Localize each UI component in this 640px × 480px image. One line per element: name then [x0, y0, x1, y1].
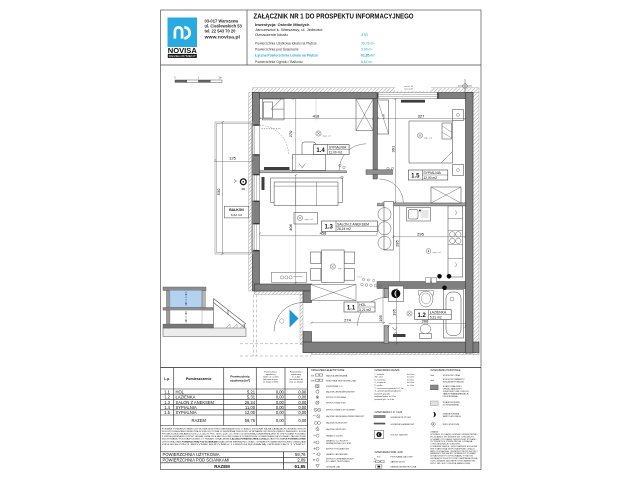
svg-text:0,00: 0,00: [276, 410, 285, 415]
svg-text:Npd: Npd: [430, 380, 433, 382]
svg-text:OZNACZENIA C.O. I GAZ: OZNACZENIA C.O. I GAZ: [375, 411, 403, 414]
svg-text:ZAŁĄCZNIK NR 1 DO PROSPEKTU IN: ZAŁĄCZNIK NR 1 DO PROSPEKTU INFORMACYJNE…: [254, 11, 414, 20]
svg-text:ŁĄCZNIK SCHODOWY: ŁĄCZNIK SCHODOWY: [326, 422, 348, 425]
svg-text:WENTYLACJI MECH.: WENTYLACJI MECH.: [443, 415, 462, 418]
svg-text:0,00: 0,00: [298, 410, 307, 415]
svg-text:KRATKA GEOMETRYCZNA: KRATKA GEOMETRYCZNA: [391, 466, 417, 469]
svg-text:5,31 m2: 5,31 m2: [430, 316, 442, 320]
svg-text:LW: LW: [382, 114, 386, 118]
svg-text:PODANE POWIERZCHNIE UŻYTKOWE B: PODANE POWIERZCHNIE UŻYTKOWE BUDYNKU MIE…: [162, 427, 307, 430]
svg-text:59,76: 59,76: [295, 452, 306, 457]
svg-text:61,85: 61,85: [295, 464, 307, 469]
svg-text:Łączna Powierzchnia Lokalu na: Łączna Powierzchnia Lokalu na Piętrze: [255, 54, 318, 58]
svg-text:budówka kotłów: h= 0,5m: budówka kotłów: h= 0,5m: [375, 395, 397, 398]
svg-text:SYPIALNIA: SYPIALNIA: [329, 146, 347, 150]
svg-text:125: 125: [229, 156, 236, 161]
svg-text:1.4: 1.4: [316, 148, 325, 154]
svg-text:wyp. suf.: wyp. suf.: [323, 136, 332, 138]
svg-text:1.3: 1.3: [325, 225, 334, 231]
svg-text:Z UWZGLĘDNIENIEM UCZYNIĆ JEDNA: Z UWZGLĘDNIENIEM UCZYNIĆ JEDNAK USTALI D…: [162, 435, 307, 438]
svg-text:RAZEM: RAZEM: [214, 464, 230, 469]
svg-text:195: 195: [391, 308, 396, 315]
svg-text:h= 0,6m: h= 0,6m: [407, 374, 414, 376]
svg-text:1.5: 1.5: [411, 173, 420, 179]
svg-text:GNIAZDO 1x230V: GNIAZDO 1x230V: [326, 435, 343, 438]
svg-text:PROJEKTU BUDOWLANEGO (DZ.U. Z: PROJEKTU BUDOWLANEGO (DZ.U. Z 2022 R. PO…: [162, 433, 307, 436]
svg-text:0,00: 0,00: [276, 418, 285, 423]
svg-text:295: 295: [417, 232, 424, 237]
svg-text:uż. lokalu w 50%): uż. lokalu w 50%): [263, 381, 278, 383]
svg-text:6,62 m2: 6,62 m2: [231, 213, 242, 217]
svg-text:PG: PG: [377, 456, 380, 458]
svg-text:SYPIALNIA: SYPIALNIA: [423, 171, 441, 175]
svg-text:5,21 m2: 5,21 m2: [359, 308, 371, 312]
svg-text:OZNACZENIA WOD.-KAN.: OZNACZENIA WOD.-KAN.: [375, 451, 404, 454]
svg-text:PION KANALIZACYJNY: PION KANALIZACYJNY: [391, 455, 414, 458]
svg-text:G - gniazdo grzałki grządk: G - gniazdo grzałki grządkowej: [375, 390, 401, 393]
svg-text:użytkowa [m²]: użytkowa [m²]: [230, 378, 250, 382]
svg-text:6,62 m²: 6,62 m²: [361, 60, 373, 64]
svg-text:TABLICA MIESZKANIA: TABLICA MIESZKANIA: [326, 374, 348, 377]
svg-text:OZNACZENIA ELEKTRYCZNE: OZNACZENIA ELEKTRYCZNE: [311, 369, 345, 372]
svg-text:1.1: 1.1: [347, 305, 356, 311]
svg-text:TŻW: TŻW: [311, 380, 315, 383]
svg-text:KOCIOŁ GAZOWY: KOCIOŁ GAZOWY: [391, 434, 409, 437]
svg-text:274: 274: [344, 318, 351, 323]
svg-text:WZGLĘDEM POSADZKI: WZGLĘDEM POSADZKI: [443, 381, 464, 384]
svg-text:ŁĄCZNIK GRUPOWY: ŁĄCZNIK GRUPOWY: [326, 428, 347, 431]
svg-text:(DO WENT. SUFITOWEJ): (DO WENT. SUFITOWEJ): [326, 461, 350, 463]
svg-text:59,76: 59,76: [245, 418, 256, 423]
svg-text:12,00: 12,00: [245, 410, 256, 415]
svg-text:SYPIALNIA: SYPIALNIA: [176, 410, 197, 415]
svg-text:418: 418: [313, 113, 320, 118]
svg-text:ŁĄCZNIK JEDNOBIEGUNOWY: ŁĄCZNIK JEDNOBIEGUNOWY: [326, 391, 356, 394]
svg-text:285: 285: [395, 239, 400, 246]
svg-text:h= 1,0m: h= 1,0m: [407, 385, 414, 387]
svg-text:ZAWÓR WODY: ZAWÓR WODY: [391, 460, 406, 463]
svg-text:SKRZYNKA TELETECHNICZNA: SKRZYNKA TELETECHNICZNA: [326, 380, 356, 383]
svg-text:I UZUPEŁNIENIA: I UZUPEŁNIENIA: [443, 395, 459, 398]
svg-text:Powierzchnia Użytkowa lokalu n: Powierzchnia Użytkowa lokalu na Piętrze: [255, 41, 317, 45]
svg-text:ŁĄCZNIK JEDNOBIEG./ŚWIECZNIKOW: ŁĄCZNIK JEDNOBIEG./ŚWIECZNIKOWY: [326, 415, 365, 418]
svg-text:BALKON: BALKON: [229, 208, 244, 212]
svg-text:WYPUST TRÓJFAZOWY: WYPUST TRÓJFAZOWY: [326, 447, 350, 450]
svg-text:SALON Z ANEKSEM: SALON Z ANEKSEM: [337, 222, 369, 226]
svg-text:OZNACZENIA GNIAZD: OZNACZENIA GNIAZD: [375, 369, 400, 372]
svg-text:GNIAZDO ANTENOWE: GNIAZDO ANTENOWE: [326, 453, 348, 456]
svg-text:0,00: 0,00: [298, 418, 307, 423]
svg-text:Powierzchnia pod Ściankami: Powierzchnia pod Ściankami: [255, 47, 299, 52]
svg-text:W ROZPORZĄDZENIU MINISTRA ROZW: W ROZPORZĄDZENIU MINISTRA ROZWOJU Z DNIA…: [162, 430, 306, 433]
svg-text:tel. 22 543 70 20: tel. 22 543 70 20: [205, 29, 237, 34]
svg-text:2m: 2m: [219, 77, 222, 80]
svg-text:pow. uż. lokalu): pow. uż. lokalu): [290, 381, 303, 383]
svg-text:OZNACZENIA POZOSTAŁE: OZNACZENIA POZOSTAŁE: [430, 369, 461, 372]
svg-text:h= 0,9m: h= 0,9m: [407, 377, 414, 379]
svg-text:37B: 37B: [361, 33, 368, 37]
svg-text:ZW - zlew: ZW - zlew: [375, 377, 384, 379]
svg-text:12,00 m2: 12,00 m2: [423, 176, 437, 180]
svg-text:CELKA RLO/AL: CELKA RLO/AL: [326, 465, 341, 468]
svg-text:GRZEJNIK ŁAZIENKOWY: GRZEJNIK ŁAZIENKOWY: [391, 423, 416, 426]
svg-text:Nad: Nad: [430, 375, 433, 377]
svg-text:www.novisa.pl: www.novisa.pl: [203, 34, 240, 39]
svg-text:P - pralka: P - pralka: [375, 384, 384, 387]
svg-text:GRZEJNIK PŁYTOWY: GRZEJNIK PŁYTOWY: [391, 417, 412, 419]
svg-text:UŻYTKOWĄ ORAZ POWIERZCHNIĘ POD: UŻYTKOWĄ ORAZ POWIERZCHNIĘ POD ŚCIANKAMI…: [162, 440, 307, 443]
svg-text:11,00 m2: 11,00 m2: [329, 150, 343, 154]
svg-text:406: 406: [288, 223, 293, 230]
svg-text:poziomek gniazda:: poziomek gniazda:: [375, 393, 391, 395]
svg-text:WZOROWANIU PODSTAWY A WIĘC Z T: WZOROWANIU PODSTAWY A WIĘC Z TYNKAMI. OZ…: [162, 438, 307, 441]
svg-text:WYPUST ŚWIETLNY: WYPUST ŚWIETLNY: [326, 402, 346, 405]
svg-text:327: 327: [418, 113, 425, 118]
svg-text:1.2: 1.2: [418, 313, 427, 319]
svg-text:2,09 m²: 2,09 m²: [361, 48, 373, 52]
svg-text:RAZEM: RAZEM: [192, 418, 207, 423]
svg-text:195: 195: [378, 314, 383, 321]
svg-text:Z - zmywarka: Z - zmywarka: [375, 381, 387, 384]
svg-text:L.p.: L.p.: [164, 377, 170, 381]
svg-text:WYPUST DZWONKA: WYPUST DZWONKA: [326, 396, 346, 399]
svg-text:wys=1,28: wys=1,28: [404, 88, 414, 90]
svg-text:wyp. suf.: wyp. suf.: [433, 252, 442, 254]
svg-text:530: 530: [216, 188, 221, 195]
svg-text:HOL: HOL: [359, 303, 366, 307]
svg-text:POWIERZCHNIA UŻYTKOWA: POWIERZCHNIA UŻYTKOWA: [163, 452, 220, 457]
svg-text:wyp. suf.: wyp. suf.: [305, 219, 314, 221]
svg-text:61,85 m²: 61,85 m²: [361, 54, 375, 58]
svg-text:2,09: 2,09: [297, 458, 306, 463]
svg-text:270: 270: [288, 130, 293, 137]
svg-text:ZEWNĘTRZNEJ QUL 2PM: ZEWNĘTRZNEJ QUL 2PM: [326, 442, 351, 445]
svg-text:wyp.: wyp.: [338, 268, 343, 270]
svg-text:h= 0,6m: h= 0,6m: [407, 379, 414, 381]
svg-text:STEROWNIK C.O.: STEROWNIK C.O.: [326, 386, 344, 388]
svg-text:Pomieszczenie: Pomieszczenie: [186, 377, 212, 381]
svg-text:L - łazienka: L - łazienka: [375, 374, 386, 376]
svg-text:T - oznaczenie wysokości: T - oznaczenie wysokości h= 1,2m: [375, 388, 404, 390]
svg-text:Oznaczenie lokalu: Oznaczenie lokalu: [255, 32, 288, 37]
svg-text:szer=1,50: szer=1,50: [404, 85, 414, 88]
svg-text:DO WYBURZENIA: DO WYBURZENIA: [443, 404, 460, 407]
svg-text:POWIERZCHNIA POD ŚCIANKAMI: POWIERZCHNIA POD ŚCIANKAMI: [163, 458, 230, 463]
svg-text:ŁAZIENKA: ŁAZIENKA: [430, 311, 447, 315]
svg-text:RURY SPUSTOWE: RURY SPUSTOWE: [443, 424, 460, 426]
svg-text:UWAGA:: UWAGA:: [430, 430, 438, 433]
svg-text:poziomek ptk.: h= 0,3m: poziomek ptk.: h= 0,3m: [375, 398, 395, 401]
svg-text:ODLEGŁOŚCI JEDYNIE BUDYNKU I U: ODLEGŁOŚCI JEDYNIE BUDYNKU I UWZGLĘDNIAJ…: [162, 443, 307, 446]
svg-text:K - kuchenka: K - kuchenka: [375, 379, 387, 381]
svg-text:wyp. suf.: wyp. suf.: [424, 138, 433, 140]
svg-text:391: 391: [390, 145, 395, 152]
svg-text:26,24 m2: 26,24 m2: [337, 227, 351, 231]
svg-text:h= 0,6m: h= 0,6m: [407, 382, 414, 384]
svg-text:Powierzchnia Ogrodu / Balkonu: Powierzchnia Ogrodu / Balkonu: [255, 60, 303, 64]
svg-text:WYPUST ŚWIETLNY ŚCIENNY: WYPUST ŚWIETLNY ŚCIENNY: [326, 409, 356, 412]
svg-text:WYSOKOŚĆ OKNA: WYSOKOŚĆ OKNA: [443, 374, 461, 377]
svg-text:1.5: 1.5: [164, 410, 170, 415]
svg-text:39,76 m²: 39,76 m²: [361, 41, 375, 45]
svg-text:DEVELOPMENT: DEVELOPMENT: [169, 54, 197, 58]
